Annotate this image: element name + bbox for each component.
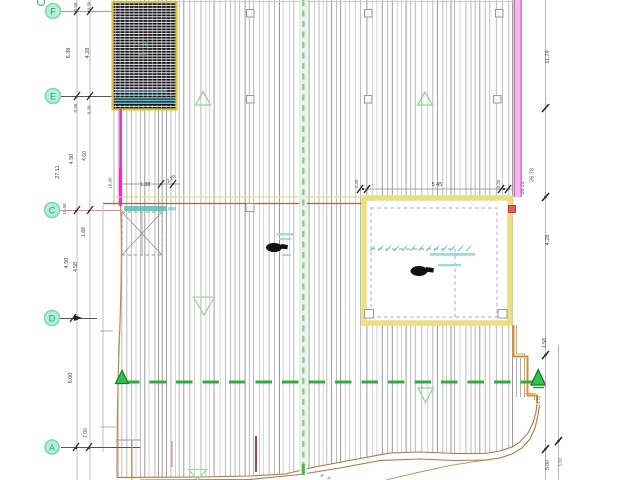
- svg-text:10.08: 10.08: [62, 203, 67, 215]
- svg-text:E: E: [50, 92, 56, 102]
- svg-text:8.38: 8.38: [66, 48, 72, 59]
- svg-text:0.98: 0.98: [73, 103, 78, 112]
- svg-text:5.45: 5.45: [432, 182, 443, 188]
- svg-text:0.30: 0.30: [87, 105, 92, 114]
- svg-text:11.79: 11.79: [545, 50, 551, 63]
- svg-text:1.58: 1.58: [542, 338, 548, 348]
- svg-text:4.58: 4.58: [73, 262, 79, 272]
- svg-text:A: A: [49, 443, 55, 453]
- svg-text:1.71: 1.71: [536, 395, 541, 404]
- svg-text:4.6: 4.6: [139, 52, 147, 58]
- svg-text:5.00: 5.00: [68, 373, 74, 384]
- svg-text:26.78: 26.78: [530, 168, 536, 182]
- svg-text:D: D: [49, 314, 56, 324]
- svg-text:4.50: 4.50: [69, 154, 75, 165]
- svg-text:0.30: 0.30: [87, 1, 92, 10]
- svg-text:0.30: 0.30: [354, 179, 359, 188]
- svg-text:16.96: 16.96: [108, 177, 113, 189]
- svg-text:0.98: 0.98: [73, 2, 78, 11]
- svg-text:C: C: [49, 206, 56, 216]
- svg-text:+4.65: +4.65: [134, 42, 148, 48]
- svg-text:4.28: 4.28: [545, 235, 551, 246]
- svg-text:27.11: 27.11: [55, 165, 61, 178]
- svg-text:1.88: 1.88: [81, 227, 87, 237]
- svg-text:7.00: 7.00: [83, 428, 89, 438]
- svg-text:5.00: 5.00: [545, 460, 551, 470]
- svg-text:4.60: 4.60: [82, 151, 88, 161]
- svg-text:F: F: [50, 7, 56, 17]
- svg-text:4.50: 4.50: [64, 258, 70, 269]
- svg-text:0.30: 0.30: [496, 179, 501, 188]
- svg-text:1.88: 1.88: [140, 182, 151, 188]
- svg-text:1.02: 1.02: [558, 457, 563, 466]
- svg-text:4.28: 4.28: [85, 48, 91, 59]
